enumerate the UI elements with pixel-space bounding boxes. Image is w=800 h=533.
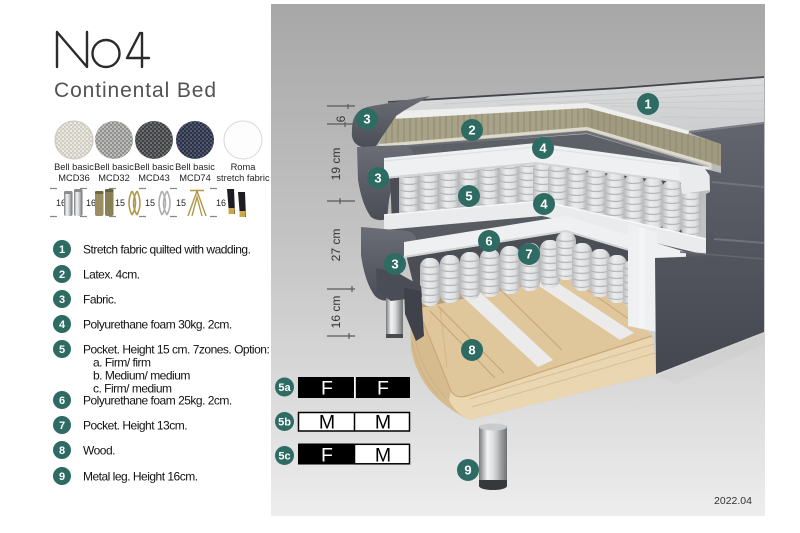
svg-text:F: F (321, 378, 333, 400)
svg-text:Roma: Roma (231, 162, 257, 172)
svg-text:Pocket. Height 15 cm. 7zones.: Pocket. Height 15 cm. 7zones. Option: (83, 343, 269, 357)
svg-text:Stretch fabric quilted with wa: Stretch fabric quilted with wadding. (83, 243, 251, 257)
svg-text:6: 6 (485, 234, 492, 249)
svg-text:Wood.: Wood. (83, 444, 115, 458)
svg-text:15: 15 (115, 198, 125, 208)
svg-text:4: 4 (59, 319, 66, 331)
svg-text:MCD32: MCD32 (98, 173, 130, 183)
svg-text:3: 3 (391, 257, 398, 272)
svg-text:Pocket. Height 13cm.: Pocket. Height 13cm. (83, 419, 187, 433)
svg-text:15: 15 (176, 198, 186, 208)
svg-text:19 cm: 19 cm (329, 148, 343, 181)
svg-text:3: 3 (374, 171, 381, 186)
svg-text:Latex. 4cm.: Latex. 4cm. (83, 268, 140, 282)
svg-text:2: 2 (468, 123, 475, 138)
svg-text:1: 1 (644, 97, 651, 112)
svg-text:M: M (375, 412, 391, 434)
svg-text:F: F (321, 445, 333, 467)
svg-text:a. Firm/ firm: a. Firm/ firm (93, 356, 151, 370)
svg-text:MCD43: MCD43 (138, 173, 170, 183)
svg-text:27 cm: 27 cm (329, 229, 343, 262)
svg-text:16: 16 (86, 198, 96, 208)
svg-text:1: 1 (59, 244, 65, 256)
svg-text:9: 9 (464, 463, 471, 478)
svg-text:5: 5 (465, 189, 472, 204)
svg-text:16: 16 (216, 198, 226, 208)
svg-text:M: M (375, 445, 391, 467)
svg-text:3: 3 (363, 112, 370, 127)
svg-text:6: 6 (59, 395, 65, 407)
svg-text:Fabric.: Fabric. (83, 293, 116, 307)
svg-text:2022.04: 2022.04 (714, 495, 752, 507)
svg-text:5a: 5a (278, 382, 291, 394)
svg-text:15: 15 (145, 198, 155, 208)
svg-text:5c: 5c (278, 451, 290, 463)
svg-text:stretch fabric: stretch fabric (216, 173, 270, 183)
svg-text:MCD36: MCD36 (58, 173, 90, 183)
svg-text:2: 2 (59, 269, 65, 281)
svg-text:Bell basic: Bell basic (175, 162, 215, 172)
svg-text:6: 6 (334, 115, 348, 122)
svg-text:16 cm: 16 cm (329, 296, 343, 329)
svg-text:Continental Bed: Continental Bed (54, 79, 217, 102)
svg-text:b. Medium/ medium: b. Medium/ medium (93, 369, 190, 383)
svg-text:Bell basic: Bell basic (94, 162, 134, 172)
svg-text:Bell basic: Bell basic (134, 162, 174, 172)
svg-text:4: 4 (540, 197, 548, 212)
svg-text:Bell basic: Bell basic (54, 162, 94, 172)
svg-text:8: 8 (468, 343, 475, 358)
svg-text:7: 7 (525, 247, 532, 262)
svg-text:3: 3 (59, 294, 65, 306)
svg-text:8: 8 (59, 445, 65, 457)
svg-text:5b: 5b (278, 417, 291, 429)
svg-text:4: 4 (539, 141, 547, 156)
svg-text:9: 9 (59, 471, 65, 483)
svg-text:Polyurethane foam 25kg. 2cm.: Polyurethane foam 25kg. 2cm. (83, 394, 232, 408)
svg-text:Polyurethane foam 30kg. 2cm.: Polyurethane foam 30kg. 2cm. (83, 318, 232, 332)
svg-text:Metal leg. Height 16cm.: Metal leg. Height 16cm. (83, 470, 198, 484)
svg-text:F: F (377, 378, 389, 400)
svg-text:MCD74: MCD74 (179, 173, 211, 183)
svg-text:5: 5 (59, 344, 65, 356)
svg-text:M: M (319, 412, 335, 434)
svg-text:7: 7 (59, 420, 65, 432)
